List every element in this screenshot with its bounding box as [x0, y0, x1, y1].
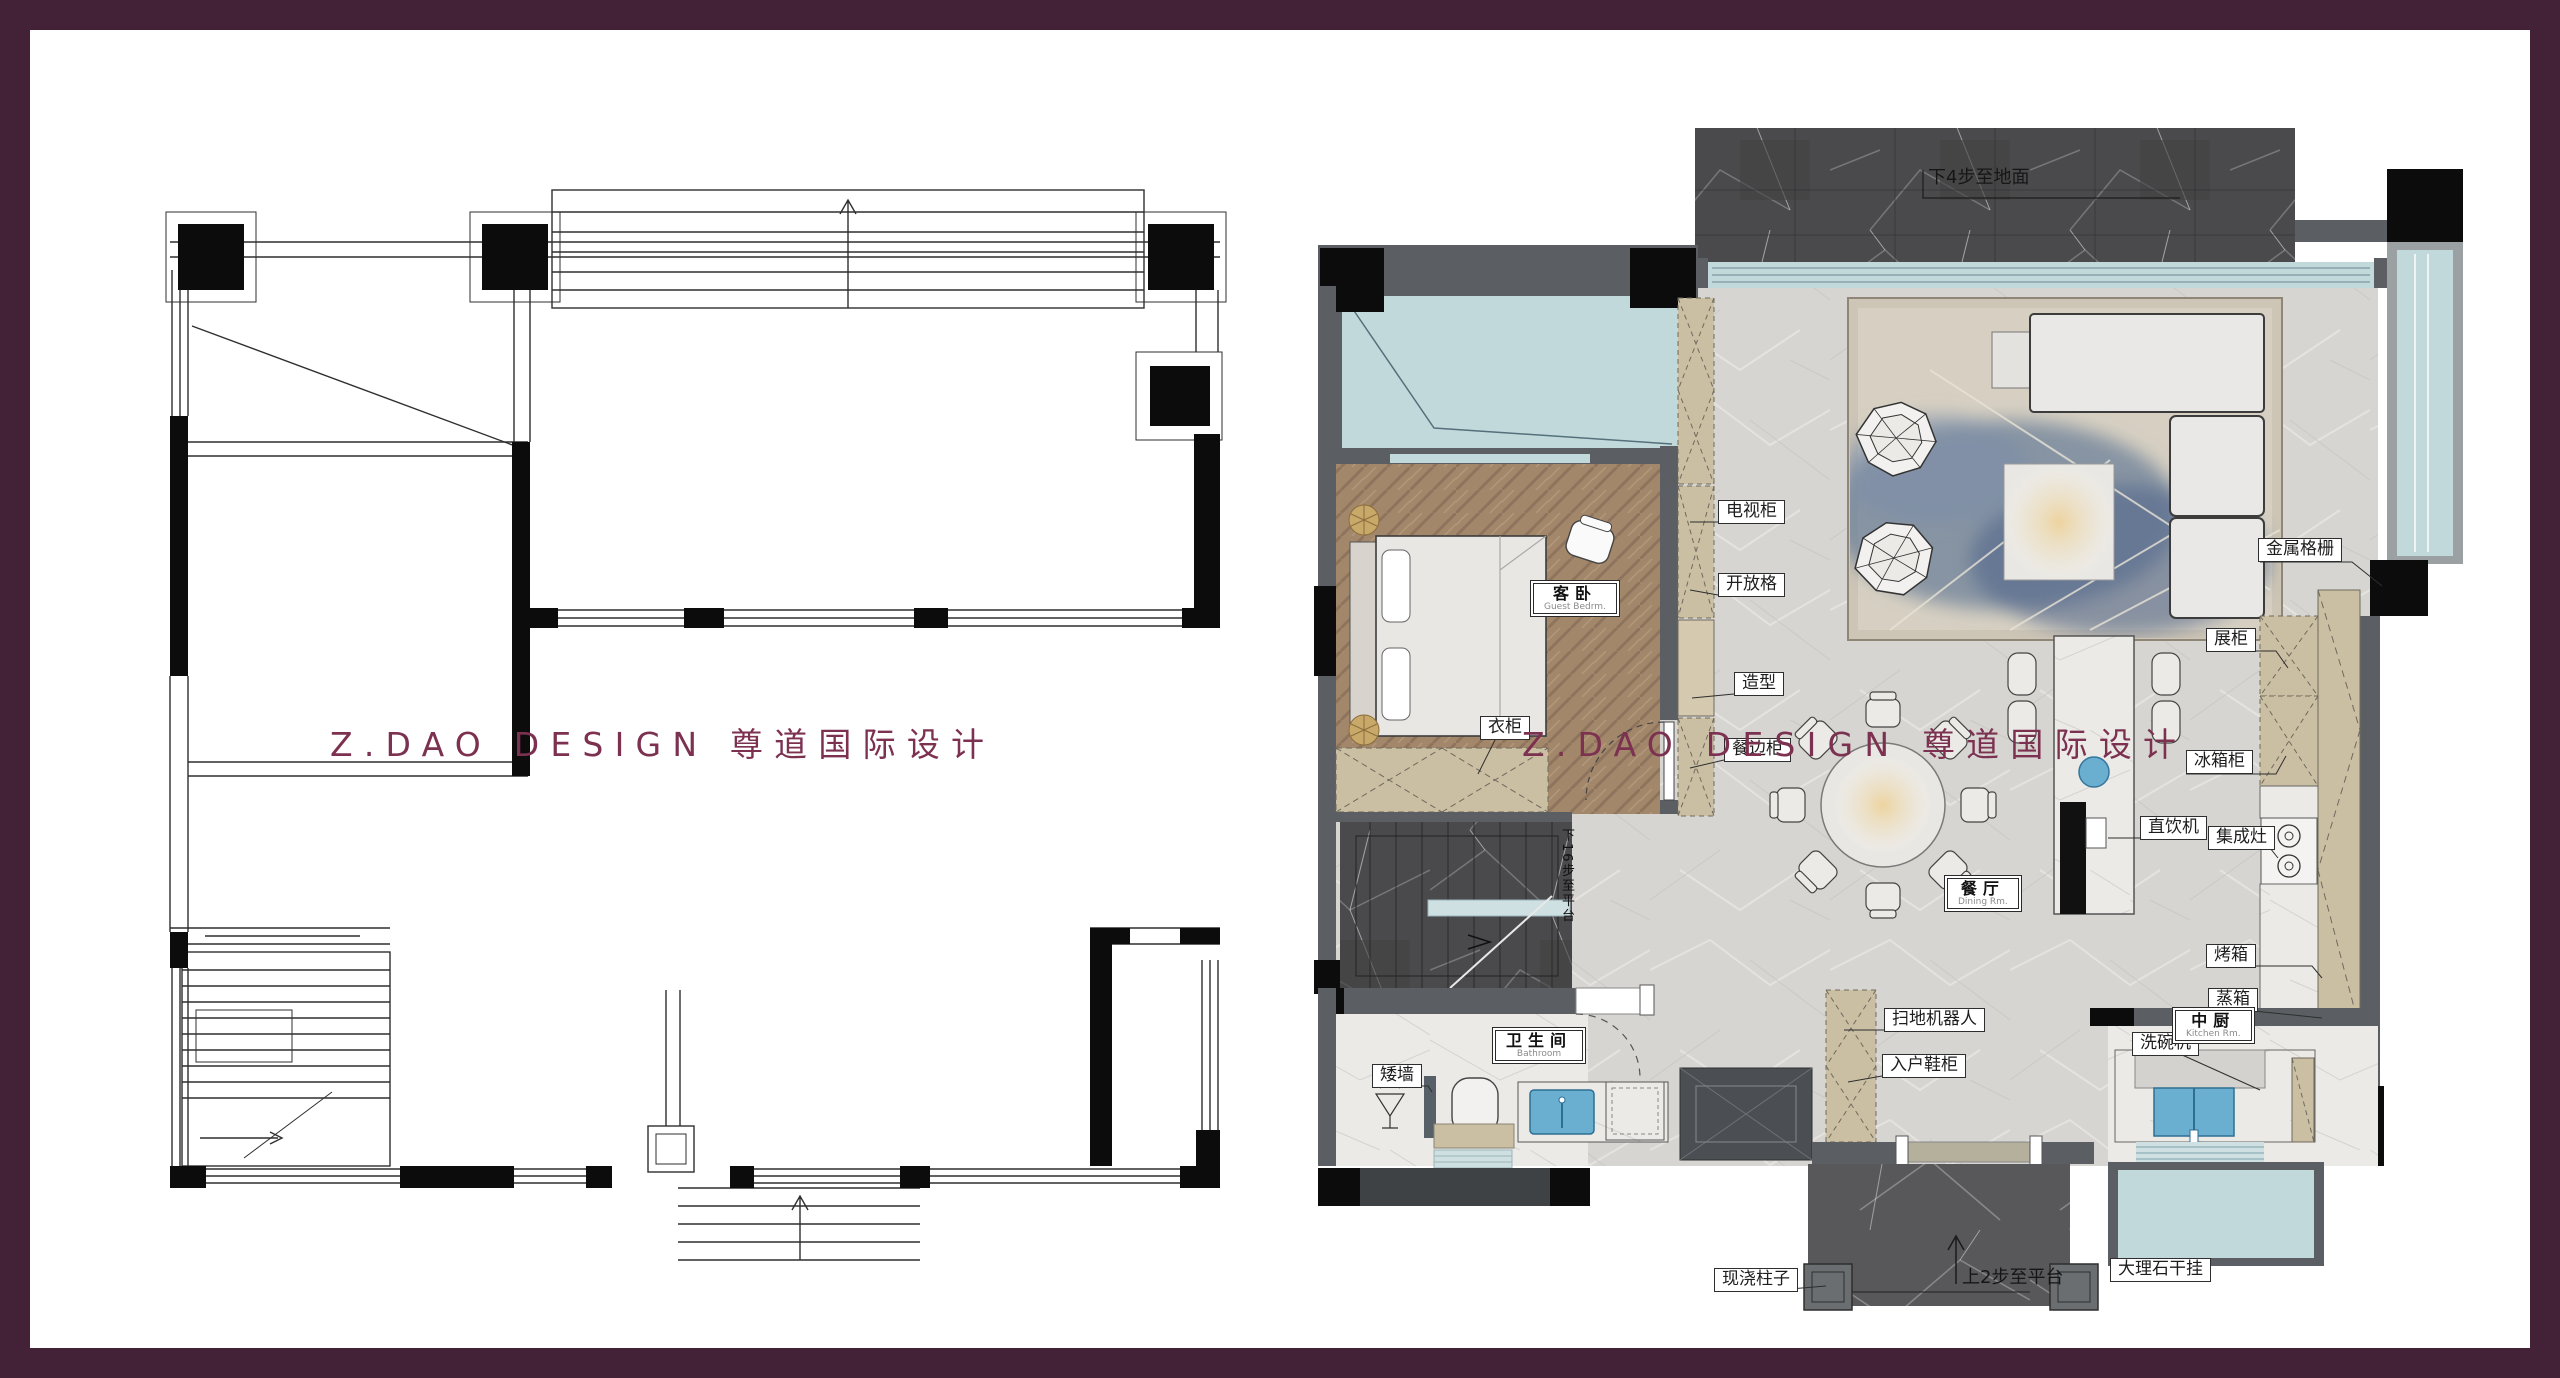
room-label-en: Bathroom [1506, 1050, 1572, 1060]
room-label-zh: 中厨 [2186, 1012, 2241, 1030]
annotation-tag: 展柜 [2206, 628, 2256, 652]
room-label: 卫生间Bathroom [1492, 1027, 1586, 1064]
room-label-en: Kitchen Rm. [2186, 1030, 2241, 1040]
annotation-tag: 下16步至平台 [1558, 828, 1573, 924]
annotation-tag: 扫地机器人 [1884, 1008, 1985, 1032]
room-label: 客卧Guest Bedrm. [1530, 580, 1620, 617]
annotation-tag: 电视柜 [1718, 500, 1785, 524]
page-frame: Z.DAO DESIGN 尊道国际设计 Z.DAO DESIGN 尊道国际设计 … [0, 0, 2560, 1378]
floor-plans-drawing [30, 30, 2560, 1378]
annotation-tag: 入户鞋柜 [1882, 1054, 1966, 1078]
watermark-left: Z.DAO DESIGN 尊道国际设计 [330, 718, 995, 766]
annotation-tag: 集成灶 [2208, 826, 2275, 850]
annotation-tag: 下4步至地面 [1928, 168, 2029, 189]
annotation-tag: 冰箱柜 [2186, 750, 2253, 774]
room-label-en: Guest Bedrm. [1544, 603, 1606, 613]
room-label-en: Dining Rm. [1958, 898, 2008, 908]
room-label: 餐厅Dining Rm. [1944, 875, 2022, 912]
annotation-tag: 现浇柱子 [1714, 1268, 1798, 1292]
left-plan-walls [170, 224, 1220, 1188]
annotation-tag: 上2步至平台 [1962, 1268, 2063, 1289]
room-label-zh: 客卧 [1544, 585, 1606, 603]
annotation-tag: 直饮机 [2140, 816, 2207, 840]
annotation-tag: 金属格栅 [2258, 538, 2342, 562]
annotation-tag: 矮墙 [1372, 1064, 1422, 1088]
watermark-right: Z.DAO DESIGN 尊道国际设计 [1522, 718, 2187, 766]
room-label-zh: 卫生间 [1506, 1032, 1572, 1050]
annotation-tag: 大理石干挂 [2110, 1258, 2211, 1282]
annotation-tag: 开放格 [1718, 573, 1785, 597]
room-label: 中厨Kitchen Rm. [2172, 1007, 2255, 1044]
room-label-zh: 餐厅 [1958, 880, 2008, 898]
annotation-tag: 造型 [1734, 672, 1784, 696]
annotation-tag: 烤箱 [2206, 944, 2256, 968]
